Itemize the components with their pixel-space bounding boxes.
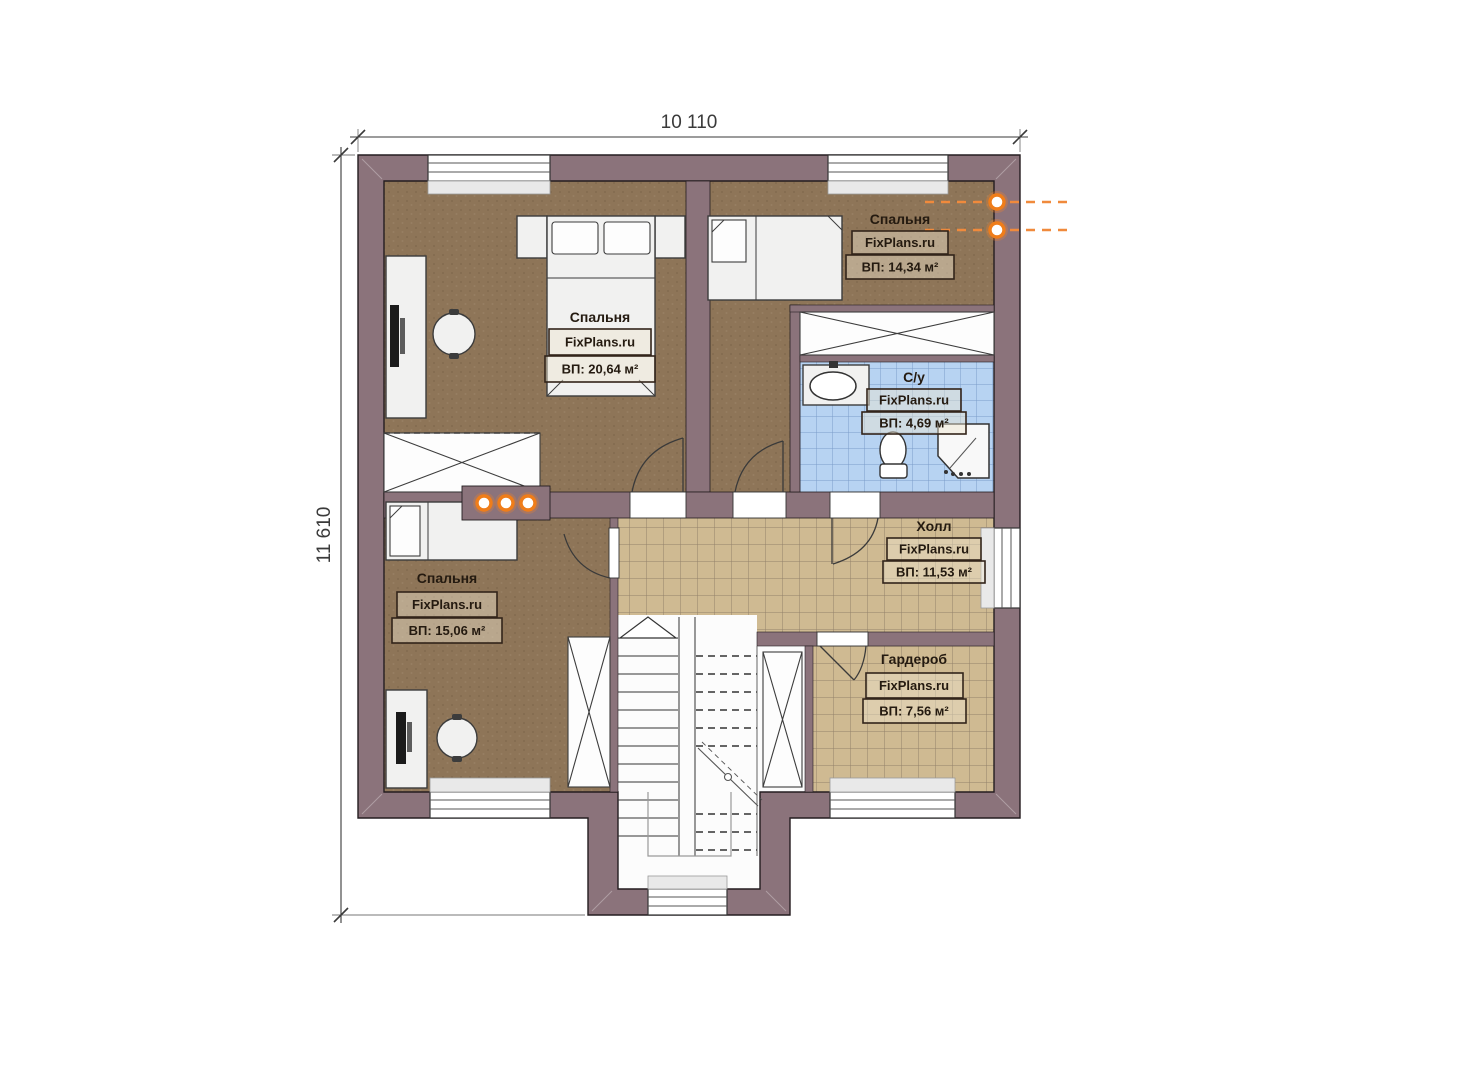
area-text: ВП: 14,34 м² [862, 260, 939, 275]
radiator-icon [986, 191, 1008, 213]
closet-cabinet-icon [763, 652, 802, 787]
brand-text: FixPlans.ru [879, 393, 949, 408]
area-text: ВП: 4,69 м² [879, 416, 949, 431]
chair-arm [452, 756, 462, 762]
stairwell-floor [618, 615, 757, 792]
faucet-icon [829, 361, 838, 368]
brand-text: FixPlans.ru [899, 542, 969, 557]
floor-plan-page: Спальня FixPlans.ru ВП: 20,64 м² Спальня… [0, 0, 1473, 1080]
office-chair-icon [437, 718, 477, 758]
area-text: ВП: 7,56 м² [879, 704, 949, 719]
window-bottom-right [830, 778, 955, 818]
dimension-height-value: 11 610 [314, 507, 335, 564]
window-sill [648, 876, 727, 889]
window-sill [830, 778, 955, 792]
nightstand-icon [517, 216, 547, 258]
sink-icon [810, 372, 856, 400]
keyboard-icon [407, 722, 412, 752]
dimension-top: 10 110 [350, 112, 1028, 152]
pillow-icon [552, 222, 598, 254]
closet-top-wall [790, 305, 994, 312]
pillow-icon [604, 222, 650, 254]
window-bay [648, 876, 727, 915]
interior-wall-bedrooms-divider [686, 181, 710, 492]
window-right [981, 528, 1020, 608]
wall-spotlights [462, 486, 550, 520]
spotlight-icon [473, 492, 495, 514]
computer-monitor-icon [390, 305, 399, 367]
keyboard-icon [400, 318, 405, 354]
room-name: С/у [903, 369, 925, 385]
toilet-icon [880, 432, 907, 478]
bedroom-2-strip-texture [710, 305, 790, 492]
office-chair-icon [433, 313, 475, 355]
spotlight-icon [495, 492, 517, 514]
dimension-width-value: 10 110 [661, 112, 718, 133]
spotlight-icon [517, 492, 539, 514]
hall-wardrobe-wall [757, 632, 994, 646]
window-sill [828, 181, 948, 194]
area-text: ВП: 20,64 м² [562, 362, 639, 377]
bathroom-left-wall [790, 305, 800, 492]
brand-text: FixPlans.ru [865, 235, 935, 250]
stair-bay-floor [618, 792, 760, 889]
area-text: ВП: 11,53 м² [896, 565, 973, 580]
room-name: Спальня [870, 211, 930, 227]
window-top-left [428, 155, 550, 194]
wardrobe-left-wall [805, 646, 813, 792]
area-text: ВП: 15,06 м² [409, 623, 486, 638]
window-top-right [828, 155, 948, 194]
brand-text: FixPlans.ru [879, 678, 949, 693]
wardrobe-cabinet-icon [568, 637, 610, 787]
brand-text: FixPlans.ru [565, 335, 635, 350]
window-sill [430, 778, 550, 792]
wardrobe-cabinet-icon [384, 433, 540, 492]
room-name: Холл [916, 518, 951, 534]
window-sill [428, 181, 550, 194]
closet-bathroom-divider [800, 355, 994, 362]
desk-icon [386, 690, 427, 788]
closet-cabinet-icon [800, 312, 994, 355]
computer-monitor-icon [396, 712, 406, 764]
chair-arm [449, 309, 459, 315]
room-name: Спальня [417, 570, 477, 586]
window-bottom-left [430, 778, 550, 818]
room-name: Спальня [570, 309, 630, 325]
room-name: Гардероб [881, 651, 948, 667]
chair-arm [449, 353, 459, 359]
chair-arm [452, 714, 462, 720]
brand-text: FixPlans.ru [412, 597, 482, 612]
radiator-icon [986, 219, 1008, 241]
floor-plan-drawing: Спальня FixPlans.ru ВП: 20,64 м² Спальня… [0, 0, 1473, 1080]
nightstand-icon [655, 216, 685, 258]
